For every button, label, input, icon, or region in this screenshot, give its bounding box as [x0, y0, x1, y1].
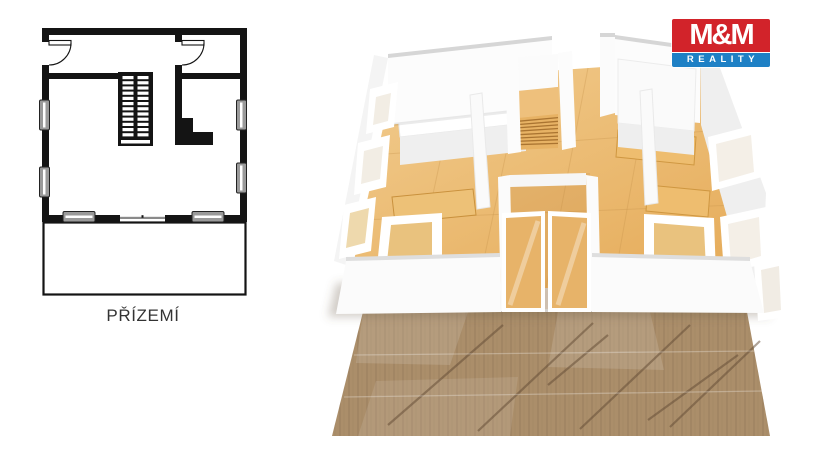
floorplan-2d: [36, 22, 250, 298]
stairs-symbol: [118, 72, 153, 146]
floorplan-3d: [318, 25, 818, 465]
logo-subtitle-bar: REALITY: [672, 52, 770, 67]
floor-label: PŘÍZEMÍ: [36, 306, 250, 326]
staircase-3d: [505, 51, 576, 154]
door-symbol-left: [49, 41, 71, 66]
deck: [332, 312, 770, 436]
chimney: [175, 118, 213, 145]
screenshot-root: PŘÍZEMÍ: [0, 0, 832, 468]
logo-title: M&M: [689, 21, 752, 50]
door-symbol-right: [182, 41, 204, 66]
terrace-outline: [44, 223, 246, 295]
mm-reality-logo: M&M REALITY: [672, 19, 770, 67]
room-block-back-right: [618, 59, 696, 155]
logo-title-bar: M&M: [672, 19, 770, 52]
sliding-door-symbol: [120, 215, 165, 219]
logo-subtitle: REALITY: [683, 55, 759, 65]
